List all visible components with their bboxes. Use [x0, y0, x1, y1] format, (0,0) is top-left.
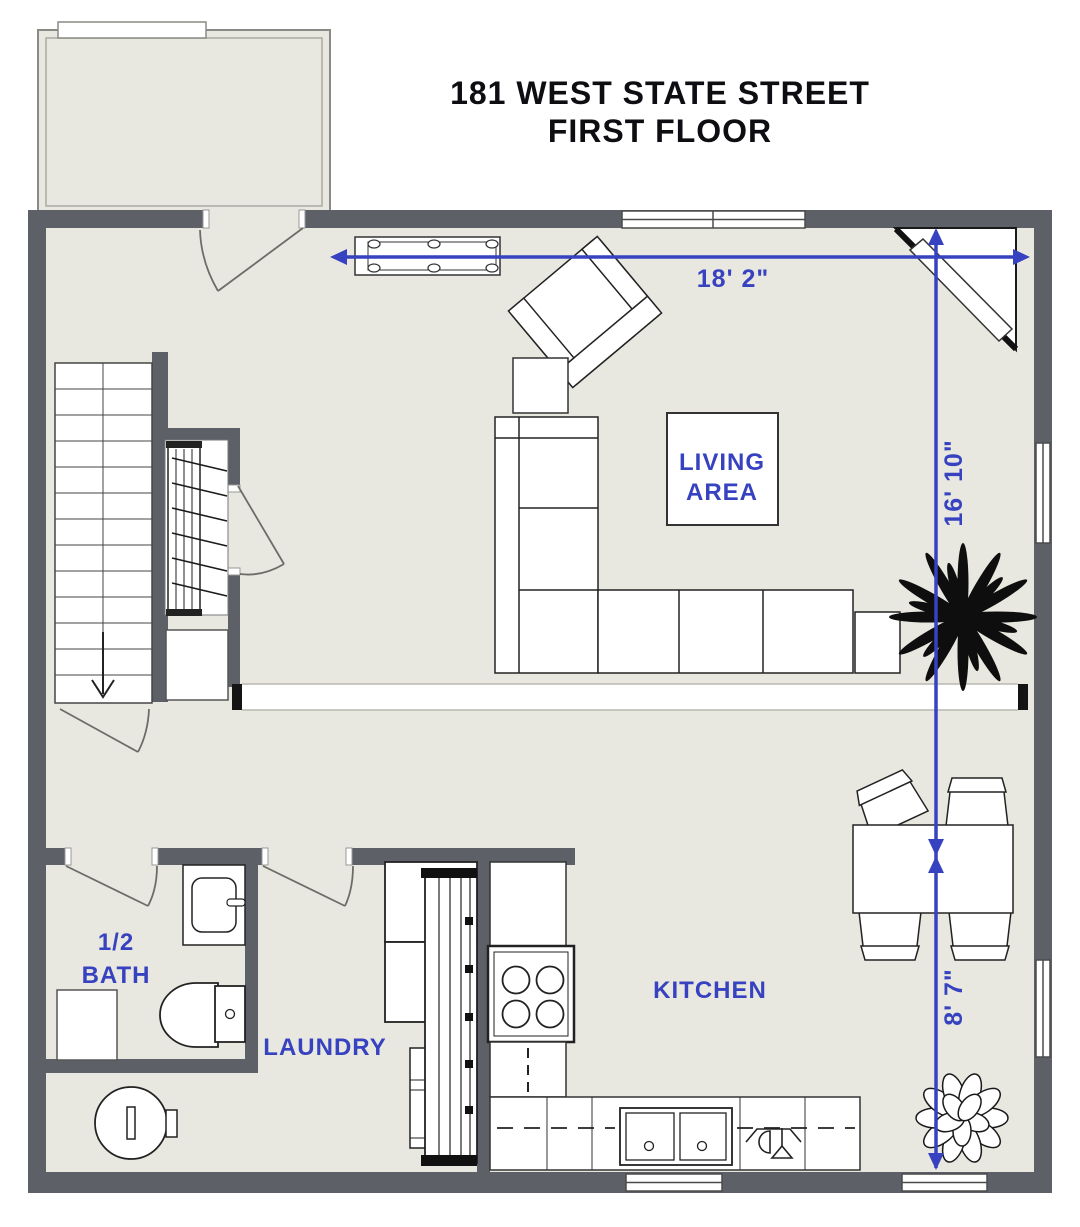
laundry-label: LAUNDRY: [263, 1034, 386, 1061]
dining-chair: [859, 912, 921, 960]
stove: [488, 946, 574, 1042]
dim-overall-width: 18' 2": [697, 265, 769, 293]
right-window-lower: [1036, 960, 1050, 1057]
bath-label-line1: 1/2: [98, 929, 134, 956]
kitchen-label: KITCHEN: [653, 977, 767, 1004]
entry-door-opening: [203, 210, 305, 228]
coat-closet: [165, 440, 228, 616]
floor-plan-drawing: LIVING AREA: [0, 0, 1080, 1227]
dining-chair: [949, 912, 1011, 960]
dishwasher: [490, 1042, 566, 1097]
drying-rack: [421, 868, 477, 1166]
entry-deck: [38, 22, 330, 212]
right-window-upper: [1036, 443, 1050, 543]
dim-living-depth: 16' 10": [940, 439, 968, 526]
floor-plan-page: 181 WEST STATE STREET FIRST FLOOR: [0, 0, 1080, 1227]
living-area-label-box: LIVING AREA: [667, 413, 778, 525]
open-passage: [242, 684, 1018, 710]
staircase: [55, 363, 152, 703]
bottom-window-right: [902, 1174, 987, 1191]
living-area-label-line1: LIVING: [679, 449, 765, 476]
living-area-label-line2: AREA: [686, 479, 758, 506]
double-sink: [620, 1108, 732, 1165]
dim-kitchen-depth: 8' 7": [940, 968, 968, 1026]
toilet: [160, 983, 245, 1047]
passage-cap-right: [1018, 684, 1028, 710]
hall-cabinet: [166, 630, 228, 700]
bath-cabinet: [57, 990, 117, 1060]
vanity-sink: [183, 865, 245, 945]
sofa-end-table: [855, 612, 900, 673]
passage-cap-left: [232, 684, 242, 710]
deck-step: [58, 22, 206, 38]
bottom-window-sink: [626, 1174, 722, 1191]
bath-bottom-wall: [46, 1059, 258, 1073]
side-table: [513, 358, 568, 413]
top-window: [622, 211, 805, 228]
kitchen-counter-upper: [490, 862, 566, 948]
dining-chair: [946, 778, 1008, 826]
bath-label-line2: BATH: [82, 962, 151, 989]
bath-right-wall: [245, 865, 258, 1072]
